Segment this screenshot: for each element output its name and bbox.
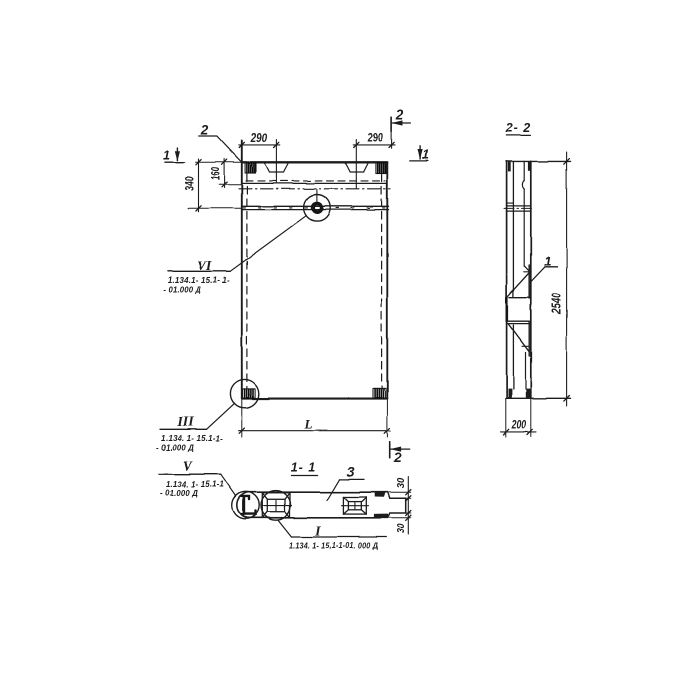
svg-text:1: 1 — [422, 148, 429, 162]
svg-text:III: III — [176, 415, 194, 430]
svg-text:200: 200 — [511, 419, 527, 431]
svg-text:3: 3 — [347, 465, 355, 480]
svg-text:1: 1 — [544, 255, 551, 269]
svg-text:2: 2 — [395, 108, 404, 123]
svg-text:2- 2: 2- 2 — [505, 121, 532, 135]
svg-text:2: 2 — [393, 450, 402, 465]
svg-text:L: L — [304, 417, 313, 432]
svg-text:1: 1 — [163, 149, 170, 163]
svg-text:1.134.1- 15.1- 1-: 1.134.1- 15.1- 1- — [168, 275, 230, 285]
svg-text:30: 30 — [395, 478, 407, 489]
svg-text:2540: 2540 — [550, 293, 564, 315]
svg-text:30: 30 — [395, 523, 407, 533]
svg-text:- 01.000 Д: - 01.000 Д — [160, 488, 198, 498]
svg-text:1.134. 1- 15.1-1-: 1.134. 1- 15.1-1- — [161, 433, 223, 443]
svg-text:340: 340 — [183, 176, 197, 191]
svg-text:- 01.000 Д: - 01.000 Д — [163, 285, 201, 295]
svg-text:2: 2 — [200, 123, 209, 138]
svg-text:V: V — [182, 460, 193, 475]
svg-text:I: I — [314, 525, 321, 540]
svg-text:VI: VI — [197, 259, 212, 274]
svg-text:290: 290 — [366, 131, 383, 145]
svg-text:- 01.000 Д: - 01.000 Д — [156, 443, 194, 453]
svg-text:160: 160 — [211, 167, 223, 181]
svg-text:1.134. 1- 15,1-1-01. 000 Д: 1.134. 1- 15,1-1-01. 000 Д — [289, 541, 378, 551]
svg-text:290: 290 — [250, 131, 268, 145]
svg-text:1- 1: 1- 1 — [291, 461, 317, 475]
